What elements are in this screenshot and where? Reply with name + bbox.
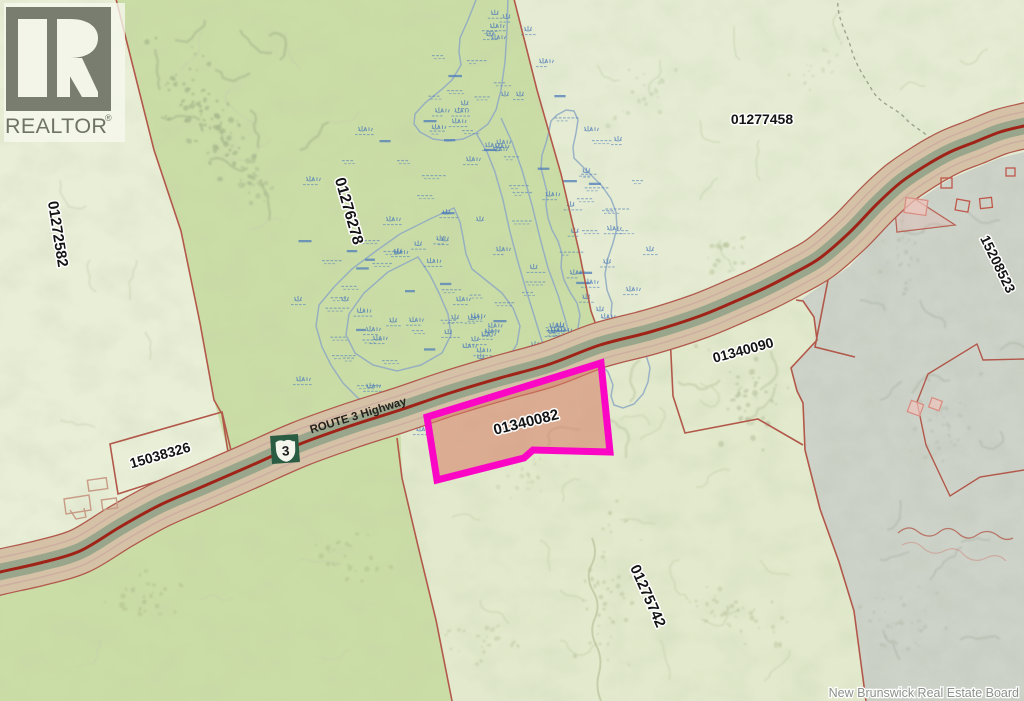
svg-text:New Brunswick Real Estate Boar: New Brunswick Real Estate Board — [829, 686, 1019, 700]
svg-text:01277458: 01277458 — [731, 111, 794, 127]
svg-text:®: ® — [105, 113, 112, 123]
svg-text:REALTOR: REALTOR — [5, 114, 107, 138]
